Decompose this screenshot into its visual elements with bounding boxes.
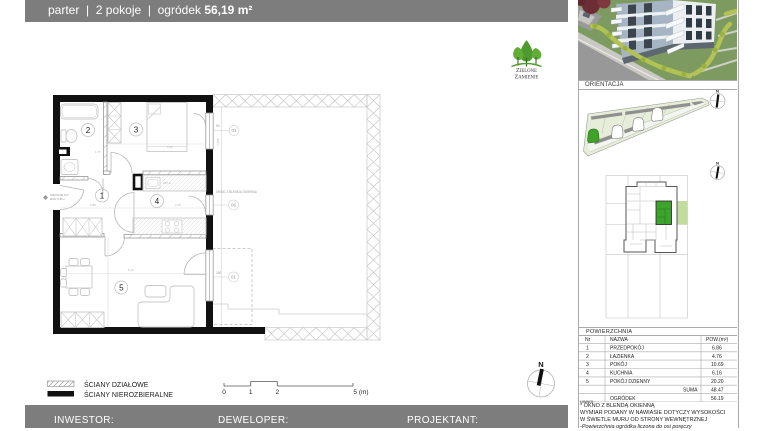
svg-text:ŚCIANY NIEROZBIERALNE: ŚCIANY NIEROZBIERALNE xyxy=(84,390,173,399)
svg-text:3: 3 xyxy=(586,362,589,368)
svg-text:2: 2 xyxy=(586,353,589,359)
svg-text:2: 2 xyxy=(86,126,91,135)
svg-text:POW.(m²): POW.(m²) xyxy=(706,337,729,343)
svg-text:0: 0 xyxy=(222,389,226,396)
svg-text:287,2: 287,2 xyxy=(163,181,171,185)
svg-text:5 (m): 5 (m) xyxy=(353,389,368,396)
svg-text:3: 3 xyxy=(134,126,139,135)
svg-text:1: 1 xyxy=(100,192,105,201)
svg-text:6.86: 6.86 xyxy=(712,345,722,351)
svg-text:OGRÓDEK: OGRÓDEK xyxy=(610,394,636,401)
svg-text:4: 4 xyxy=(586,370,589,376)
svg-text:06: 06 xyxy=(231,203,237,208)
svg-text:ŚCIANY DZIAŁOWE: ŚCIANY DZIAŁOWE xyxy=(84,380,149,389)
svg-text:POKÓJ DZIENNY: POKÓJ DZIENNY xyxy=(610,378,651,385)
svg-text:5,12: 5,12 xyxy=(128,268,134,272)
svg-text:N: N xyxy=(716,161,719,166)
svg-text:PRZEDPOKÓJ: PRZEDPOKÓJ xyxy=(610,344,644,351)
svg-text:KUCHNIA: KUCHNIA xyxy=(610,370,633,376)
svg-text:1: 1 xyxy=(249,389,253,396)
svg-text:7,288: 7,288 xyxy=(216,138,220,146)
svg-text:5: 5 xyxy=(586,379,589,385)
svg-text:4.76: 4.76 xyxy=(712,353,722,359)
svg-text:10.69: 10.69 xyxy=(711,362,724,368)
svg-text:5: 5 xyxy=(119,284,124,293)
svg-text:2,15: 2,15 xyxy=(175,203,181,207)
svg-text:BUDYNKU: BUDYNKU xyxy=(50,197,65,201)
svg-text:2: 2 xyxy=(275,389,279,396)
svg-text:150: 150 xyxy=(216,271,222,275)
svg-text:NAZWA: NAZWA xyxy=(610,337,629,343)
svg-text:1,77: 1,77 xyxy=(95,150,101,154)
svg-text:ZIELONE: ZIELONE xyxy=(516,67,537,74)
svg-text:ŁAZIENKA: ŁAZIENKA xyxy=(610,353,635,359)
svg-text:56.19: 56.19 xyxy=(711,395,724,401)
svg-text:OKNO Z BLENDA OKIENNA: OKNO Z BLENDA OKIENNA xyxy=(216,190,258,194)
svg-text:N: N xyxy=(716,89,719,94)
svg-text:90: 90 xyxy=(216,124,220,128)
svg-text:SUMA: SUMA xyxy=(683,387,698,393)
svg-text:ZAMIENIE: ZAMIENIE xyxy=(514,74,538,81)
svg-text:20.20: 20.20 xyxy=(711,379,724,385)
svg-text:POKÓJ: POKÓJ xyxy=(610,361,627,368)
svg-text:N: N xyxy=(538,360,543,369)
svg-text:01: 01 xyxy=(231,128,237,133)
svg-text:4: 4 xyxy=(155,197,160,206)
svg-text:3,45: 3,45 xyxy=(167,145,173,149)
svg-text:Nr: Nr xyxy=(585,337,591,343)
svg-text:1: 1 xyxy=(586,345,589,351)
svg-text:2,86: 2,86 xyxy=(90,203,96,207)
svg-text:6.16: 6.16 xyxy=(712,370,722,376)
svg-text:48.47: 48.47 xyxy=(711,387,724,393)
svg-text:01: 01 xyxy=(231,275,237,280)
